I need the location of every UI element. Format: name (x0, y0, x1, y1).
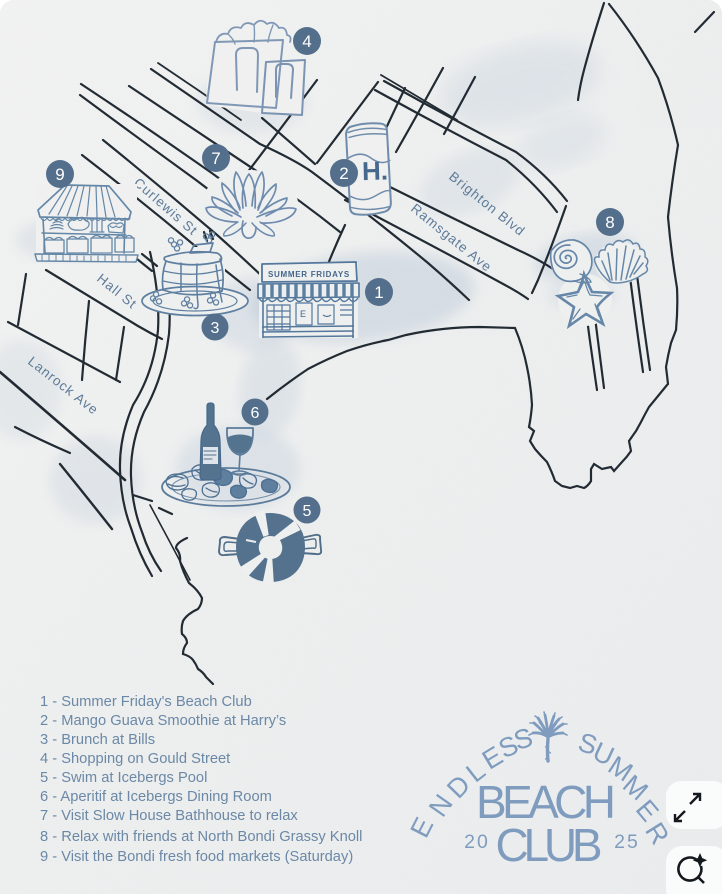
svg-text:9 - Visit the Bondi fresh food: 9 - Visit the Bondi fresh food markets (… (40, 849, 353, 865)
svg-text:8: 8 (605, 213, 614, 232)
svg-text:6: 6 (251, 405, 260, 422)
svg-text:4: 4 (302, 32, 311, 51)
svg-text:H.: H. (362, 155, 389, 186)
svg-text:3 - Brunch at Bills: 3 - Brunch at Bills (40, 732, 155, 748)
svg-text:8 - Relax with friends at Nort: 8 - Relax with friends at North Bondi Gr… (40, 829, 362, 845)
svg-text:25: 25 (614, 831, 640, 853)
svg-text:CLUB: CLUB (496, 819, 603, 871)
svg-text:7: 7 (211, 149, 220, 168)
svg-text:3: 3 (211, 320, 220, 337)
svg-text:2 - Mango Guava Smoothie at Ha: 2 - Mango Guava Smoothie at Harry’s (40, 713, 286, 729)
svg-text:E: E (300, 309, 306, 319)
svg-text:1: 1 (374, 283, 383, 302)
svg-text:20: 20 (464, 831, 490, 853)
svg-text:1 - Summer Friday's Beach Club: 1 - Summer Friday's Beach Club (40, 694, 252, 710)
svg-text:6 - Aperitif at Icebergs Dinin: 6 - Aperitif at Icebergs Dining Room (40, 789, 272, 805)
svg-text:5 - Swim at Icebergs Pool: 5 - Swim at Icebergs Pool (40, 770, 207, 786)
svg-text:SUMMER FRIDAYS: SUMMER FRIDAYS (268, 270, 350, 279)
svg-text:2: 2 (339, 164, 348, 183)
svg-text:5: 5 (303, 503, 312, 520)
svg-text:4 - Shopping on Gould Street: 4 - Shopping on Gould Street (40, 751, 230, 767)
svg-text:9: 9 (55, 165, 64, 184)
svg-text:7 - Visit Slow House Bathhouse: 7 - Visit Slow House Bathhouse to relax (40, 808, 298, 824)
